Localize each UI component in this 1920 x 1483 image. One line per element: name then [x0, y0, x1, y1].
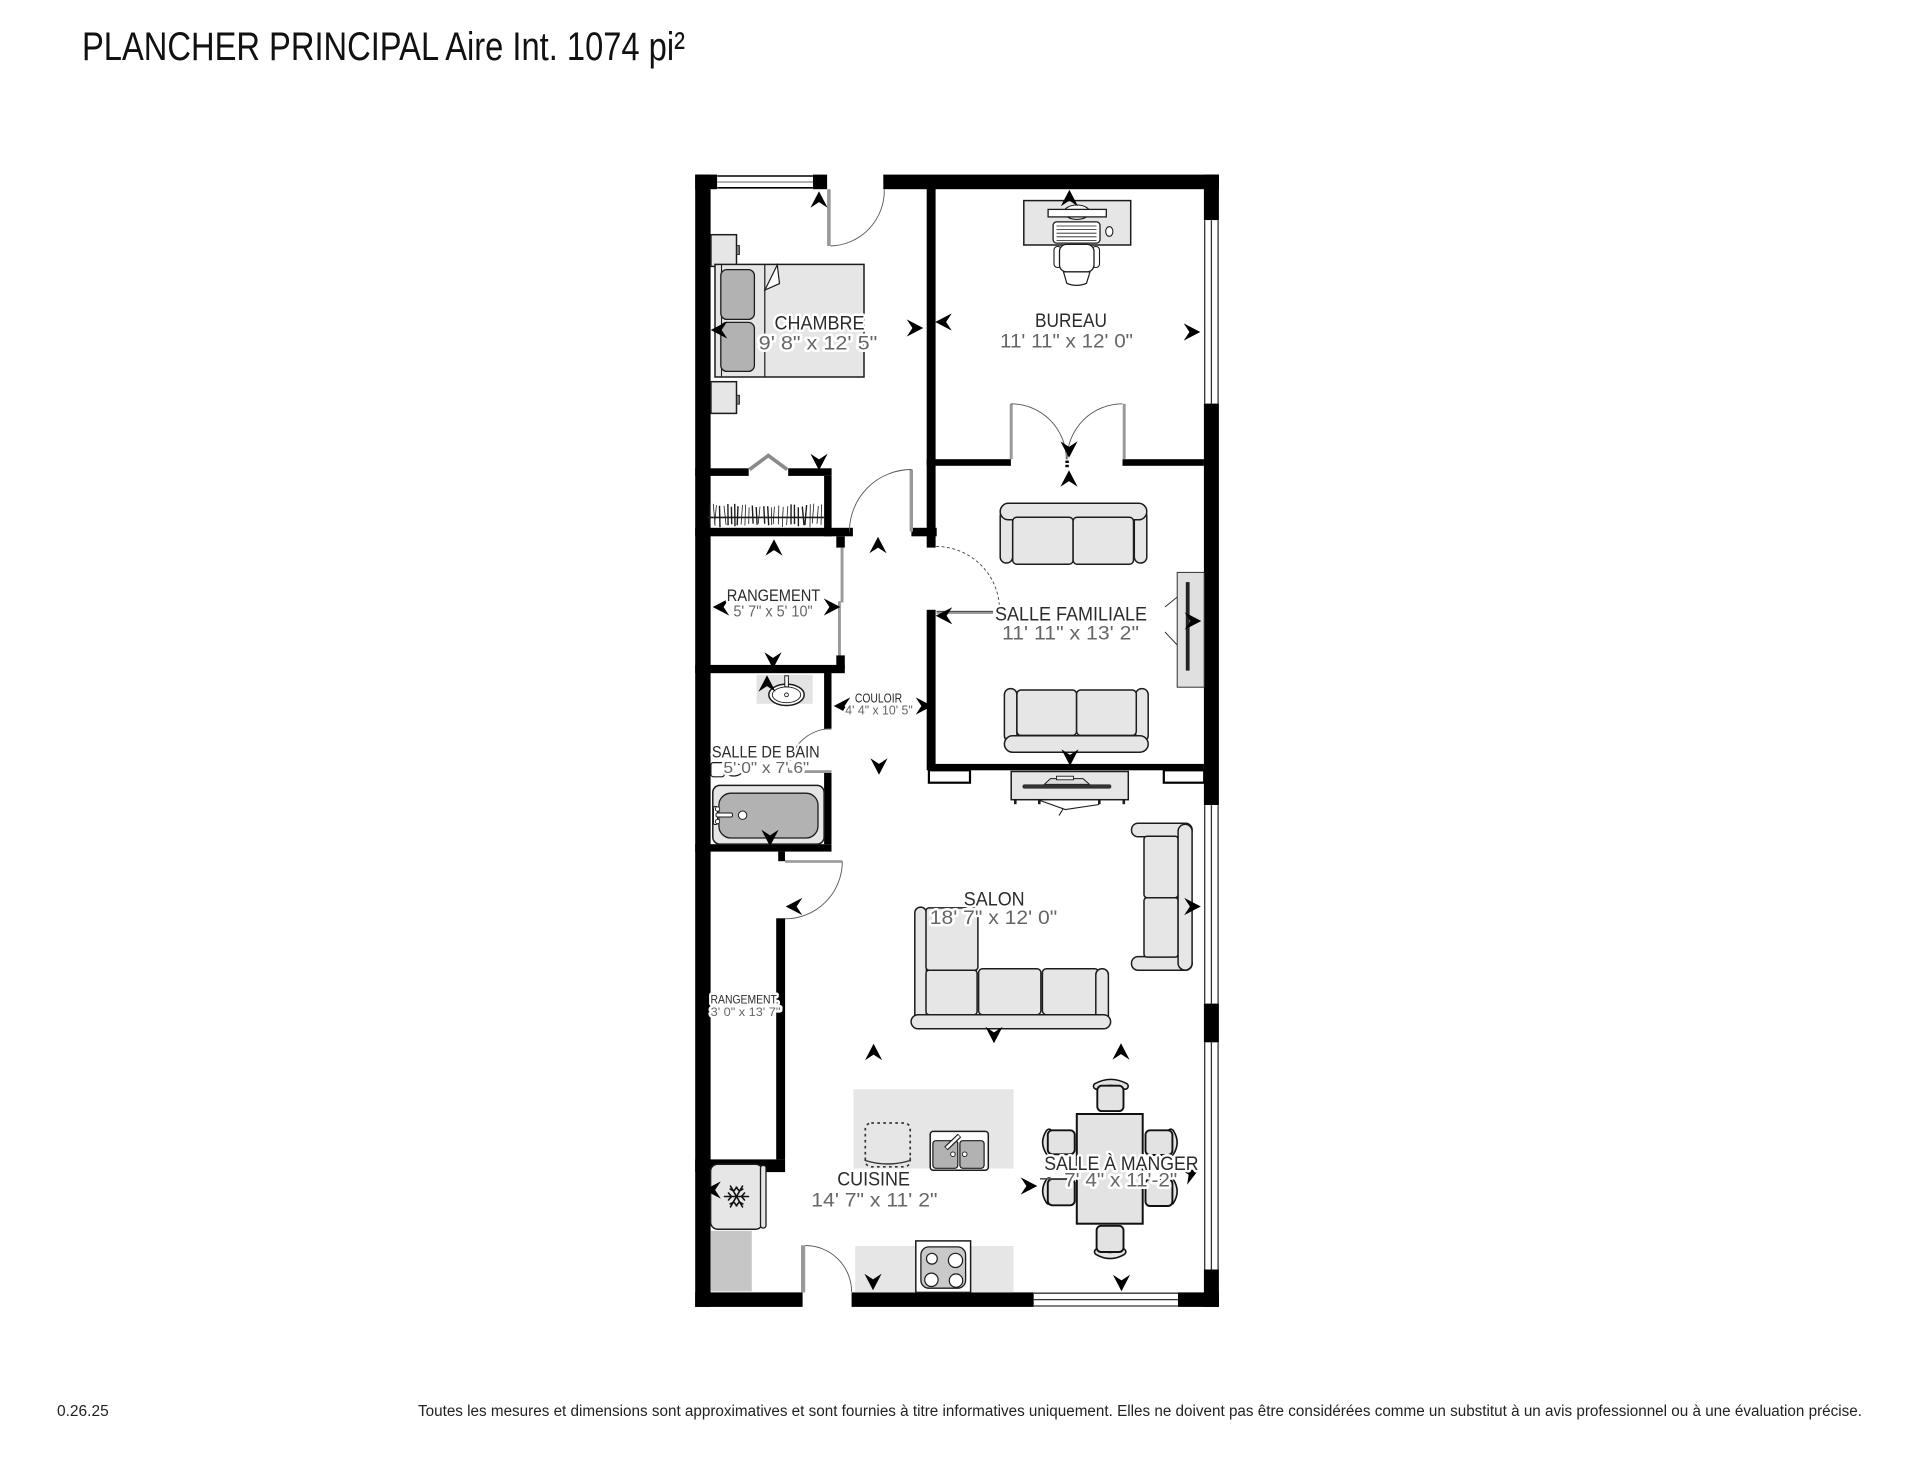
- svg-text:BUREAU: BUREAU: [1035, 310, 1107, 332]
- svg-text:11' 11" x 12' 0": 11' 11" x 12' 0": [1000, 332, 1133, 353]
- svg-text:RANGEMENT.: RANGEMENT.: [711, 995, 779, 1007]
- svg-text:11' 11" x 13' 2": 11' 11" x 13' 2": [1002, 624, 1139, 645]
- svg-text:PLANCHER PRINCIPAL Aire Int. 1: PLANCHER PRINCIPAL Aire Int. 1074 pi²: [82, 25, 685, 69]
- svg-text:3' 0" x 13' 7": 3' 0" x 13' 7": [711, 1007, 781, 1019]
- svg-text:0.26.25: 0.26.25: [57, 1403, 109, 1420]
- svg-text:4' 4" x 10' 5": 4' 4" x 10' 5": [845, 704, 912, 718]
- svg-text:7' 4" x 11'-2": 7' 4" x 11'-2": [1064, 1171, 1177, 1192]
- svg-text:9' 8" x 12' 5": 9' 8" x 12' 5": [759, 334, 878, 355]
- svg-text:CHAMBRE: CHAMBRE: [775, 313, 865, 335]
- svg-text:SALLE DE BAIN: SALLE DE BAIN: [712, 744, 820, 762]
- svg-text:14' 7" x 11' 2": 14' 7" x 11' 2": [811, 1191, 937, 1212]
- svg-text:RANGEMENT: RANGEMENT: [727, 587, 821, 605]
- svg-text:5' 0" x 7' 6": 5' 0" x 7' 6": [723, 760, 809, 777]
- svg-text:Toutes les mesures et dimensio: Toutes les mesures et dimensions sont ap…: [418, 1403, 1862, 1420]
- svg-text:5' 7" x 5' 10": 5' 7" x 5' 10": [733, 604, 812, 621]
- svg-text:SALLE FAMILIALE: SALLE FAMILIALE: [995, 604, 1147, 626]
- svg-text:CUISINE: CUISINE: [837, 1169, 910, 1191]
- svg-text:18' 7" x 12' 0": 18' 7" x 12' 0": [930, 908, 1058, 929]
